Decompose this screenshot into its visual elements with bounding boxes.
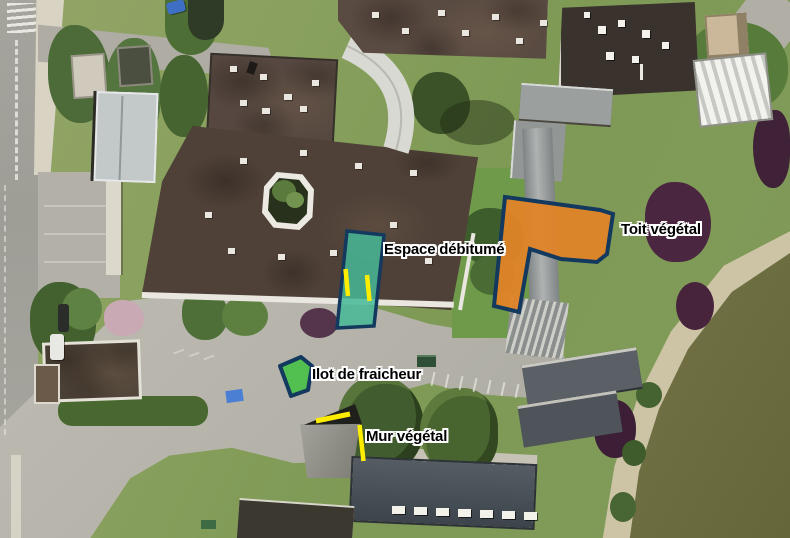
yellow-mark bbox=[346, 269, 349, 296]
label-mur-vegetal: Mur végétal bbox=[366, 428, 447, 445]
ilot-de-fraicheur-zone bbox=[280, 357, 312, 396]
label-espace-debitume: Espace débitumé bbox=[384, 241, 504, 258]
label-toit-vegetal: Toit végétal bbox=[621, 221, 701, 238]
toit-vegetal-zone bbox=[494, 197, 613, 312]
label-ilot-de-fraicheur: Ilot de fraicheur bbox=[312, 366, 421, 383]
yellow-mark bbox=[367, 275, 370, 301]
mur-vegetal-line bbox=[316, 414, 350, 421]
annotation-overlay bbox=[0, 0, 790, 538]
espace-debitume-zone bbox=[337, 231, 384, 328]
aerial-photo: Espace débitumé Toit végétal Ilot de fra… bbox=[0, 0, 790, 538]
mur-vegetal-line bbox=[360, 425, 364, 461]
